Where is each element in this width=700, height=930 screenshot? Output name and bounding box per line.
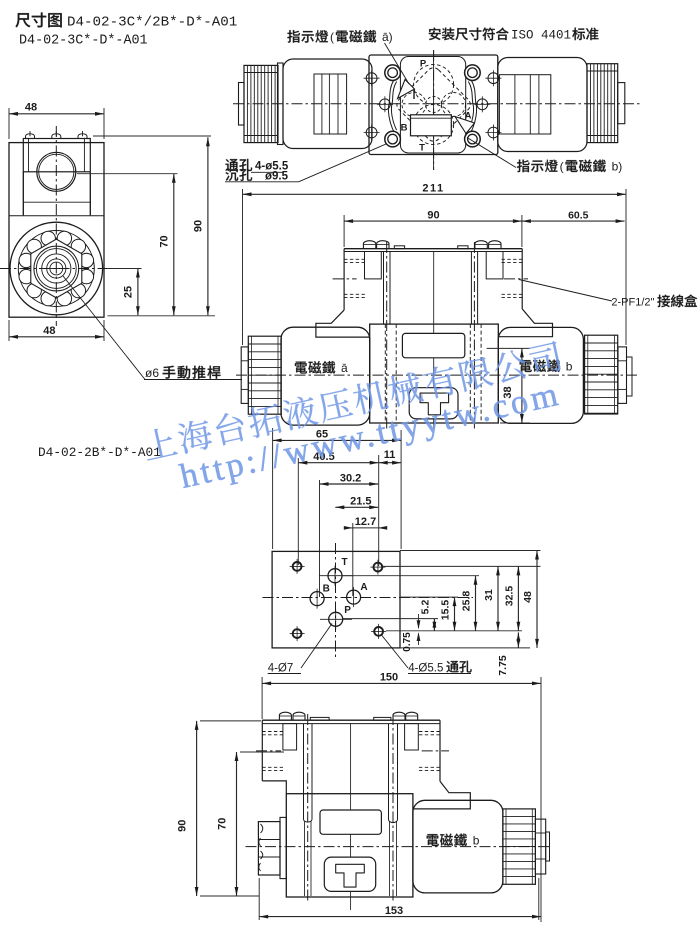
svg-text:b: b	[566, 360, 573, 374]
svg-text:31: 31	[483, 589, 495, 601]
svg-text:12.7: 12.7	[355, 516, 376, 528]
svg-text:D4-02-3C*-D*-A01: D4-02-3C*-D*-A01	[19, 34, 148, 49]
svg-text:ā): ā)	[382, 30, 393, 44]
svg-text:90: 90	[193, 220, 205, 232]
svg-text:90: 90	[177, 820, 189, 832]
svg-text:32.5: 32.5	[503, 586, 515, 607]
svg-text:70: 70	[217, 818, 229, 830]
svg-text:2-PF1/2": 2-PF1/2"	[611, 297, 654, 309]
svg-text:25: 25	[123, 286, 135, 298]
svg-text:(: (	[330, 30, 334, 44]
svg-text:P: P	[420, 59, 427, 70]
svg-text:D4-02-2B*-D*-A01: D4-02-2B*-D*-A01	[38, 445, 161, 460]
svg-text:(: (	[560, 160, 564, 174]
svg-text:ā: ā	[341, 361, 348, 375]
svg-text:15.5: 15.5	[440, 600, 452, 621]
svg-text:T: T	[341, 557, 347, 568]
svg-text:A: A	[360, 582, 367, 593]
svg-text:30.2: 30.2	[340, 472, 361, 484]
svg-text:ø6: ø6	[145, 366, 159, 380]
svg-text:4-Ø7: 4-Ø7	[268, 663, 294, 675]
svg-text:D4-02-3C*/2B*-D*-A01: D4-02-3C*/2B*-D*-A01	[67, 15, 237, 31]
svg-text:B: B	[323, 584, 330, 595]
svg-text:7.75: 7.75	[497, 655, 509, 676]
svg-text:48: 48	[522, 591, 534, 603]
svg-text:60.5: 60.5	[568, 210, 589, 222]
svg-text:211: 211	[422, 183, 444, 195]
svg-text:B: B	[401, 123, 408, 134]
svg-text:48: 48	[43, 325, 55, 337]
svg-text:48: 48	[25, 102, 37, 114]
svg-text:ISO 4401: ISO 4401	[511, 29, 571, 43]
svg-text:P: P	[344, 605, 351, 616]
svg-text:b): b)	[612, 160, 623, 174]
svg-text:4-Ø5.5: 4-Ø5.5	[408, 663, 443, 675]
svg-text:T: T	[419, 143, 425, 154]
svg-text:70: 70	[159, 235, 171, 247]
svg-text:ø9.5: ø9.5	[265, 170, 289, 182]
svg-text:b: b	[473, 834, 480, 848]
svg-text:5.2: 5.2	[420, 600, 432, 615]
svg-text:21.5: 21.5	[350, 496, 371, 508]
svg-text:150: 150	[380, 672, 398, 684]
svg-text:25.8: 25.8	[461, 591, 473, 612]
svg-text:90: 90	[427, 210, 439, 222]
svg-text:153: 153	[385, 905, 403, 917]
svg-text:0.75: 0.75	[402, 632, 413, 652]
